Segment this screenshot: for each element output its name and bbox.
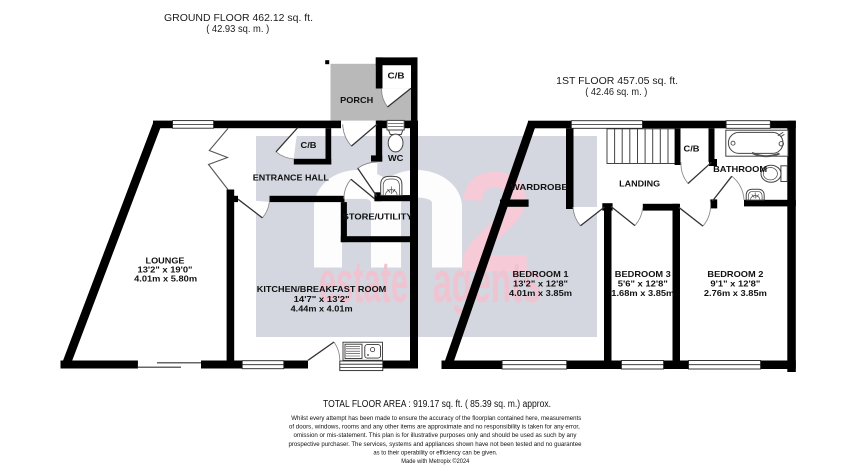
svg-text:as to their operability or eff: as to their operability or efficiency ca… xyxy=(373,449,497,456)
svg-text:PORCH: PORCH xyxy=(340,95,373,105)
svg-text:C/B: C/B xyxy=(684,144,700,154)
svg-text:4.01m x 5.80m: 4.01m x 5.80m xyxy=(134,274,197,284)
svg-text:WARDROBE: WARDROBE xyxy=(511,182,569,192)
svg-text:9'1" x 12'8": 9'1" x 12'8" xyxy=(710,279,760,289)
svg-text:TOTAL FLOOR AREA : 919.17 sq.: TOTAL FLOOR AREA : 919.17 sq. ft. ( 85.3… xyxy=(323,399,551,410)
svg-text:of doors, windows, rooms and a: of doors, windows, rooms and any other i… xyxy=(289,424,580,431)
svg-text:C/B: C/B xyxy=(388,71,405,81)
svg-text:14'7" x 13'2": 14'7" x 13'2" xyxy=(294,294,350,304)
svg-text:1.68m x 3.85m: 1.68m x 3.85m xyxy=(611,288,674,298)
svg-text:KITCHEN/BREAKFAST ROOM: KITCHEN/BREAKFAST ROOM xyxy=(257,284,387,294)
svg-text:ENTRANCE HALL: ENTRANCE HALL xyxy=(253,173,329,183)
svg-text:5'6" x 12'8": 5'6" x 12'8" xyxy=(618,279,668,289)
svg-text:BATHROOM: BATHROOM xyxy=(713,164,767,174)
svg-text:prospective purchaser. The ser: prospective purchaser. The services, sys… xyxy=(289,441,582,448)
svg-text:4.01m x 3.85m: 4.01m x 3.85m xyxy=(509,288,572,298)
svg-text:( 42.93 sq. m. ): ( 42.93 sq. m. ) xyxy=(206,24,269,35)
svg-text:omission or mis-statement. Thi: omission or mis-statement. This plan is … xyxy=(294,432,578,439)
svg-text:Whilst every attempt has been: Whilst every attempt has been made to en… xyxy=(291,415,582,422)
svg-text:STORE/UTILITY: STORE/UTILITY xyxy=(343,212,414,222)
svg-text:Made with Metropix ©2024: Made with Metropix ©2024 xyxy=(401,457,469,465)
svg-text:13'2" x 12'8": 13'2" x 12'8" xyxy=(513,279,568,289)
svg-text:LANDING: LANDING xyxy=(619,179,660,189)
svg-text:( 42.46 sq. m. ): ( 42.46 sq. m. ) xyxy=(585,87,647,98)
svg-text:1ST FLOOR 457.05 sq. ft.: 1ST FLOOR 457.05 sq. ft. xyxy=(556,76,678,87)
svg-text:WC: WC xyxy=(388,153,404,163)
svg-text:C/B: C/B xyxy=(301,140,317,150)
svg-text:2.76m x 3.85m: 2.76m x 3.85m xyxy=(704,288,767,298)
svg-text:GROUND FLOOR 462.12 sq. ft.: GROUND FLOOR 462.12 sq. ft. xyxy=(164,13,313,24)
svg-text:4.44m x 4.01m: 4.44m x 4.01m xyxy=(291,304,353,314)
